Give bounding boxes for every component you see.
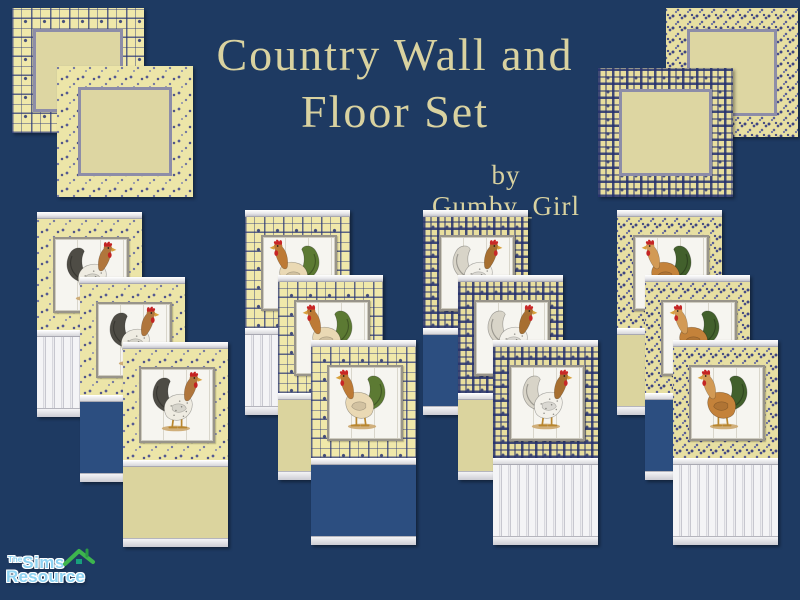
- baseboard: [493, 536, 598, 545]
- wainscot-stripes: [673, 465, 778, 536]
- wainscot-stripes: [493, 465, 598, 536]
- rooster-picture-frame: [139, 367, 215, 443]
- chair-rail: [493, 458, 598, 465]
- chair-rail: [123, 460, 228, 467]
- page-title: Country Wall and Floor Set: [135, 26, 655, 140]
- page-title-line1: Country Wall and: [135, 26, 655, 83]
- wallpaper-floral-sparse: [123, 349, 228, 460]
- top-molding: [493, 340, 598, 347]
- rooster-picture-frame: [509, 365, 585, 441]
- wall-panel-g4-3: [673, 340, 778, 545]
- rooster-picture-frame: [327, 365, 403, 441]
- wallpaper-plaid-light: [311, 347, 416, 458]
- wainscot-blue: [311, 465, 416, 536]
- top-molding: [617, 210, 722, 217]
- floor-tile-plaid-dense: [598, 68, 733, 197]
- wallpaper-plaid-dense: [493, 347, 598, 458]
- rooster-illustration: [330, 368, 396, 434]
- top-molding: [645, 275, 750, 282]
- chair-rail: [673, 458, 778, 465]
- sims-resource-logo: TheSims Resource: [6, 552, 126, 598]
- tile-center: [619, 89, 712, 176]
- wall-panel-g1-3: [123, 342, 228, 547]
- floor-tile-floral-sparse: [57, 66, 193, 197]
- top-molding: [123, 342, 228, 349]
- baseboard: [311, 536, 416, 545]
- top-molding: [278, 275, 383, 282]
- wainscot-cream: [123, 467, 228, 538]
- page-title-line2: Floor Set: [135, 83, 655, 140]
- top-molding: [458, 275, 563, 282]
- baseboard: [673, 536, 778, 545]
- top-molding: [673, 340, 778, 347]
- roof-icon: [62, 546, 96, 570]
- top-molding: [311, 340, 416, 347]
- top-molding: [37, 212, 142, 219]
- rooster-picture-frame: [689, 365, 765, 441]
- rooster-illustration: [692, 368, 758, 434]
- logo-sims: Sims: [22, 553, 65, 572]
- top-molding: [80, 277, 185, 284]
- preview-image: Country Wall and Floor Set by Gumby_Girl…: [0, 0, 800, 600]
- rooster-illustration: [142, 370, 208, 436]
- top-molding: [245, 210, 350, 217]
- top-molding: [423, 210, 528, 217]
- tile-center: [78, 87, 172, 176]
- wallpaper-floral-dense: [673, 347, 778, 458]
- logo-the: The: [8, 555, 22, 564]
- wall-panel-g3-3: [493, 340, 598, 545]
- wall-panel-g2-3: [311, 340, 416, 545]
- rooster-illustration: [512, 368, 578, 434]
- chair-rail: [311, 458, 416, 465]
- logo-line1: TheSims: [6, 552, 126, 571]
- baseboard: [123, 538, 228, 547]
